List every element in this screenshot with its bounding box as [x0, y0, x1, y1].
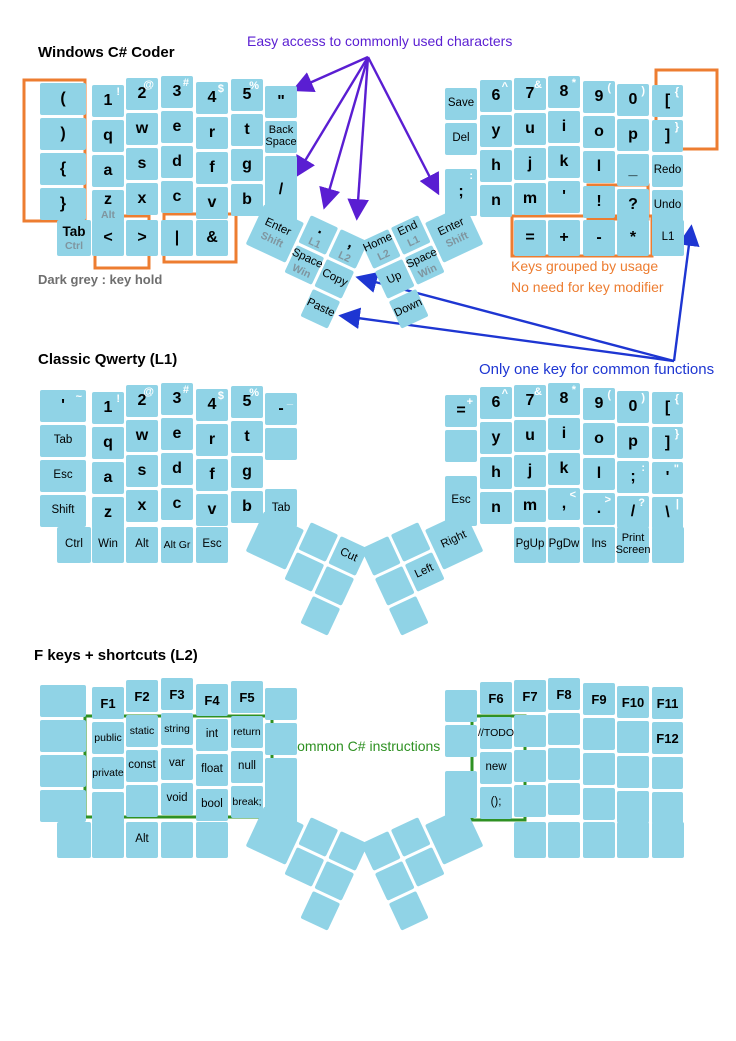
key-bool: bool — [196, 789, 228, 821]
key-hold-label: L1 — [307, 236, 323, 251]
key-f9: F9 — [583, 683, 615, 715]
key-label: //TODO — [478, 728, 514, 739]
key-label: ] — [665, 435, 670, 451]
key-blank — [161, 822, 193, 858]
key-paren-open: ( — [40, 83, 86, 115]
key-label: static — [130, 726, 155, 737]
key-j: j — [514, 148, 546, 180]
key-shift-symbol: } — [675, 429, 679, 440]
key-label: int — [206, 729, 218, 741]
key-x: x — [126, 490, 158, 522]
key-label: o — [594, 431, 604, 447]
key-save: Save — [445, 88, 477, 120]
key-c: c — [161, 488, 193, 520]
key-label: F1 — [100, 697, 115, 710]
key-h: h — [480, 150, 512, 182]
key-label: const — [128, 760, 156, 772]
key-undo: Undo — [652, 190, 683, 222]
key-blank — [583, 788, 615, 820]
key-shift-symbol: ) — [641, 393, 645, 404]
key-label: h — [491, 465, 501, 481]
key-label: 3 — [173, 391, 182, 407]
key-label: c — [173, 189, 182, 205]
key-shift-symbol: ) — [641, 86, 645, 97]
key-back-space: Back Space — [265, 121, 297, 153]
key-blank — [196, 822, 228, 858]
key-blank — [583, 718, 615, 750]
key-g: g — [231, 456, 263, 488]
key-label: void — [166, 793, 187, 805]
key-b: b — [231, 184, 263, 216]
key-label: Ins — [591, 539, 606, 551]
key-brace-open: { — [40, 153, 86, 185]
key-q: q — [92, 120, 124, 152]
key-8: 8* — [548, 76, 580, 108]
key-t: t — [231, 421, 263, 453]
key-shift-symbol: # — [183, 385, 189, 396]
key-label: / — [631, 504, 635, 520]
key-label: + — [559, 230, 568, 246]
key-hold-label: Ctrl — [65, 241, 83, 252]
key-blank — [265, 428, 297, 460]
key-alt-gr: Alt Gr — [161, 527, 193, 563]
key-plus: + — [548, 220, 580, 256]
key-shift-symbol: ! — [116, 394, 120, 405]
key-hold-label: Alt — [101, 210, 115, 221]
key-apostrophe: '~ — [40, 390, 86, 422]
key-4: 4$ — [196, 389, 228, 421]
key-f2: F2 — [126, 680, 158, 712]
key-label: a — [104, 470, 113, 486]
key-label: ' — [666, 470, 670, 486]
key-label: h — [491, 158, 501, 174]
key-m: m — [514, 490, 546, 522]
key-label: f — [209, 467, 214, 483]
key-n: n — [480, 185, 512, 217]
key-label: m — [523, 191, 537, 207]
key-label: F9 — [591, 693, 606, 706]
key-label: 8 — [560, 84, 569, 100]
key-label: break; — [232, 797, 261, 808]
key-blank — [92, 792, 124, 824]
key-label: F2 — [134, 690, 149, 703]
key-label: Left — [414, 563, 436, 582]
key-label: 9 — [595, 396, 604, 412]
key-label: Paste — [305, 297, 337, 320]
key-tab: TabCtrl — [57, 220, 91, 256]
key-label: private — [92, 768, 124, 779]
key-shift: Shift — [40, 495, 86, 527]
key-label: Esc — [202, 539, 221, 551]
key-exclamation: ! — [583, 186, 615, 218]
key-label: x — [138, 498, 147, 514]
key-public: public — [92, 722, 124, 754]
key-shift-symbol: _ — [287, 395, 293, 406]
key-label: 4 — [208, 90, 217, 106]
key-label: y — [492, 123, 501, 139]
key-label: s — [138, 156, 147, 172]
key-f: f — [196, 152, 228, 184]
key-label: b — [242, 192, 252, 208]
blue-arrow — [343, 316, 674, 361]
key-semicolon: ;: — [617, 461, 649, 493]
key-label: Down — [393, 297, 425, 320]
key-shift-symbol: " — [674, 464, 679, 475]
key-int: int — [196, 719, 228, 751]
key-label: Copy — [320, 268, 349, 290]
key-shift-symbol: ( — [607, 390, 611, 401]
key-label: d — [172, 461, 182, 477]
key-label: 8 — [560, 391, 569, 407]
note-dark-grey-legend: Dark grey : key hold — [38, 272, 162, 288]
key-question: ? — [617, 189, 649, 221]
key-slash: /? — [617, 496, 649, 528]
key-label: b — [242, 499, 252, 515]
key-blank — [265, 688, 297, 720]
key-float: float — [196, 754, 228, 786]
key-3: 3# — [161, 76, 193, 108]
key-label: L1 — [662, 232, 675, 244]
key-label: e — [173, 426, 182, 442]
key-todo: //TODO — [480, 717, 512, 749]
key-1: 1! — [92, 392, 124, 424]
key-label: ' — [562, 189, 566, 205]
key-label: Shift — [51, 505, 74, 517]
key-label: string — [164, 724, 190, 735]
key-null: null — [231, 751, 263, 783]
key-label: new — [485, 762, 506, 774]
key-paren-close: ) — [40, 118, 86, 150]
key-shift-symbol: @ — [143, 80, 154, 91]
key-label: Up — [386, 271, 404, 288]
key-f3: F3 — [161, 678, 193, 710]
key-l: l — [583, 151, 615, 183]
key-f: f — [196, 459, 228, 491]
key-shift-symbol: ^ — [502, 82, 508, 93]
key-label: 1 — [104, 400, 113, 416]
key-shift-symbol: * — [572, 385, 576, 396]
key-g: g — [231, 149, 263, 181]
key-esc: Esc — [196, 527, 228, 563]
key-label: y — [492, 430, 501, 446]
key-asterisk: * — [617, 220, 649, 256]
key-apostrophe: ' — [548, 181, 580, 213]
key-alt: Alt — [126, 527, 158, 563]
key-label: 9 — [595, 89, 604, 105]
key-ins: Ins — [583, 527, 615, 563]
key-ctrl: Ctrl — [57, 527, 91, 563]
key-label: ] — [665, 128, 670, 144]
key-label: u — [525, 121, 535, 137]
key-comma: ,< — [548, 488, 580, 520]
key-label: k — [560, 461, 569, 477]
key-label: F4 — [204, 694, 219, 707]
key-label: bool — [201, 799, 223, 811]
note-common-csharp: Common C# instructions — [287, 738, 440, 755]
key-bracket-close: ]} — [652, 120, 683, 152]
purple-arrow — [325, 57, 368, 205]
key-blank — [652, 757, 683, 789]
key-label: _ — [629, 162, 638, 178]
key-symbol: (); — [480, 787, 512, 819]
key-o: o — [583, 116, 615, 148]
key-z: z — [92, 497, 124, 529]
key-u: u — [514, 420, 546, 452]
key-label: , — [345, 235, 356, 251]
key-k: k — [548, 146, 580, 178]
key-p: p — [617, 119, 649, 151]
key-blank — [40, 790, 86, 822]
key-label: ( — [60, 91, 65, 107]
key-label: Alt — [135, 834, 148, 846]
key-y: y — [480, 422, 512, 454]
key-shift-symbol: ~ — [76, 392, 82, 403]
section-title-f-keys-shortcuts: F keys + shortcuts (L2) — [34, 647, 198, 664]
key-break: break; — [231, 786, 263, 818]
key-label: e — [173, 119, 182, 135]
key-blank — [40, 755, 86, 787]
key-static: static — [126, 715, 158, 747]
key-shift-symbol: % — [249, 81, 259, 92]
key-f10: F10 — [617, 686, 649, 718]
key-shift-symbol: : — [469, 171, 473, 182]
key-z: zAlt — [92, 190, 124, 222]
key-label: | — [175, 230, 179, 246]
key-blank — [548, 748, 580, 780]
key-label: n — [491, 193, 501, 209]
key-equals: = — [514, 220, 546, 256]
key-label: ? — [628, 197, 638, 213]
key-shift-symbol: # — [183, 78, 189, 89]
key-label: Back Space — [265, 125, 297, 149]
key-label: Esc — [53, 470, 72, 482]
key-label: { — [60, 161, 66, 177]
key-blank — [265, 723, 297, 755]
key-w: w — [126, 113, 158, 145]
key-label: Del — [452, 133, 469, 145]
key-blank — [652, 822, 684, 858]
key-n: n — [480, 492, 512, 524]
key-label: Tab — [54, 435, 73, 447]
key-blank — [445, 690, 477, 722]
key-2: 2@ — [126, 78, 158, 110]
key-label: g — [242, 157, 252, 173]
purple-arrow — [357, 57, 368, 216]
key-blank — [57, 822, 91, 858]
key-pipe: | — [161, 220, 193, 256]
key-shift-symbol: ( — [607, 83, 611, 94]
key-label: [ — [665, 400, 670, 416]
key-label: F7 — [522, 690, 537, 703]
key-f6: F6 — [480, 682, 512, 714]
key-2: 2@ — [126, 385, 158, 417]
key-shift-symbol: & — [534, 387, 542, 398]
key-5: 5% — [231, 79, 263, 111]
key-label: PgUp — [516, 539, 545, 551]
key-label: F6 — [488, 692, 503, 705]
key-esc: Esc — [40, 460, 86, 492]
key-label: Ctrl — [65, 539, 83, 551]
key-e: e — [161, 111, 193, 143]
key-v: v — [196, 187, 228, 219]
key-shift-symbol: { — [675, 87, 679, 98]
key-label: PgDw — [549, 539, 580, 551]
key-v: v — [196, 494, 228, 526]
key-redo: Redo — [652, 155, 683, 187]
key-label: } — [60, 196, 66, 212]
key-s: s — [126, 148, 158, 180]
key-5: 5% — [231, 386, 263, 418]
key-a: a — [92, 462, 124, 494]
key-label: null — [238, 761, 256, 773]
key-quote: " — [265, 86, 297, 118]
key-var: var — [161, 748, 193, 780]
key-label: . — [316, 221, 327, 237]
key-f4: F4 — [196, 684, 228, 716]
key-blank — [92, 822, 124, 858]
key-label: & — [206, 230, 218, 246]
key-r: r — [196, 117, 228, 149]
key-label: z — [104, 505, 112, 521]
key-blank — [514, 715, 546, 747]
key-label: x — [138, 191, 147, 207]
key-label: o — [594, 124, 604, 140]
key-blank — [583, 822, 615, 858]
key-label: 0 — [629, 92, 638, 108]
key-label: \ — [665, 505, 669, 521]
key-blank — [445, 725, 477, 757]
key-y: y — [480, 115, 512, 147]
key-7: 7& — [514, 78, 546, 110]
key-label: m — [523, 498, 537, 514]
key-d: d — [161, 453, 193, 485]
key-label: q — [103, 435, 113, 451]
keyboard-layout-diagram: Windows C# Coder Classic Qwerty (L1) F k… — [0, 0, 736, 1041]
key-period: .> — [583, 493, 615, 525]
key-label: 1 — [104, 93, 113, 109]
key-shift-symbol: * — [572, 78, 576, 89]
key-label: p — [628, 434, 638, 450]
key-label: n — [491, 500, 501, 516]
key-label: public — [94, 733, 121, 744]
key-alt: Alt — [126, 822, 158, 858]
key-pgdw: PgDw — [548, 527, 580, 563]
key-label: ' — [61, 398, 65, 414]
key-greater-than: > — [126, 220, 158, 256]
key-label: l — [597, 466, 601, 482]
key-0: 0) — [617, 391, 649, 423]
key-less-than: < — [92, 220, 124, 256]
key-q: q — [92, 427, 124, 459]
key-l1: L1 — [652, 220, 684, 256]
note-no-modifier: No need for key modifier — [511, 279, 664, 296]
key-shift-symbol: | — [676, 499, 679, 510]
key-label: Undo — [654, 200, 682, 212]
key-label: > — [137, 230, 146, 246]
key-blank — [617, 756, 649, 788]
key-9: 9( — [583, 388, 615, 420]
key-j: j — [514, 455, 546, 487]
key-label: (); — [491, 797, 502, 809]
key-6: 6^ — [480, 387, 512, 419]
key-m: m — [514, 183, 546, 215]
key-label: u — [525, 428, 535, 444]
key-tab: Tab — [40, 425, 86, 457]
key-label: . — [597, 501, 601, 517]
key-u: u — [514, 113, 546, 145]
key-blank — [617, 791, 649, 823]
key-label: float — [201, 764, 223, 776]
key-label: 0 — [629, 399, 638, 415]
key-blank — [548, 713, 580, 745]
key-label: = — [525, 230, 534, 246]
key-blank — [40, 720, 86, 752]
section-title-windows-csharp-coder: Windows C# Coder — [38, 44, 175, 61]
key-backslash: \| — [652, 497, 683, 529]
key-pgup: PgUp — [514, 527, 546, 563]
key-o: o — [583, 423, 615, 455]
key-h: h — [480, 457, 512, 489]
key-label: var — [169, 758, 185, 770]
key-string: string — [161, 713, 193, 745]
key-shift-symbol: $ — [218, 84, 224, 95]
key-bracket-open: [{ — [652, 85, 683, 117]
key-equals: =+ — [445, 395, 477, 427]
key-t: t — [231, 114, 263, 146]
key-label: j — [528, 156, 532, 172]
key-3: 3# — [161, 383, 193, 415]
key-label: w — [136, 428, 148, 444]
key-label: r — [209, 432, 215, 448]
key-blank — [652, 527, 684, 563]
key-label: v — [208, 195, 217, 211]
note-keys-grouped: Keys grouped by usage — [511, 258, 658, 275]
note-easy-access: Easy access to commonly used characters — [247, 33, 512, 50]
key-label: ! — [596, 194, 601, 210]
key-blank — [617, 822, 649, 858]
key-label: F10 — [622, 696, 644, 709]
key-1: 1! — [92, 85, 124, 117]
key-label: g — [242, 464, 252, 480]
key-label: return — [233, 727, 260, 738]
key-label: F12 — [656, 732, 678, 745]
key-r: r — [196, 424, 228, 456]
key-8: 8* — [548, 383, 580, 415]
key-x: x — [126, 183, 158, 215]
key-w: w — [126, 420, 158, 452]
key-f12: F12 — [652, 722, 683, 754]
key-label: F11 — [657, 697, 679, 710]
key-label: ; — [630, 469, 635, 485]
key-f8: F8 — [548, 678, 580, 710]
key-f7: F7 — [514, 680, 546, 712]
purple-arrow — [296, 57, 368, 89]
key-shift-symbol: @ — [143, 387, 154, 398]
key-label: Cut — [338, 547, 359, 565]
key-label: Right — [440, 530, 469, 552]
key-label: c — [173, 496, 182, 512]
key-blank — [548, 783, 580, 815]
key-7: 7& — [514, 385, 546, 417]
key-label: < — [103, 230, 112, 246]
key-label: / — [279, 182, 283, 198]
key-label: ) — [60, 126, 65, 142]
key-e: e — [161, 418, 193, 450]
key-shift-symbol: : — [641, 463, 645, 474]
key-i: i — [548, 111, 580, 143]
key-underscore: _ — [617, 154, 649, 186]
key-label: Redo — [654, 165, 682, 177]
